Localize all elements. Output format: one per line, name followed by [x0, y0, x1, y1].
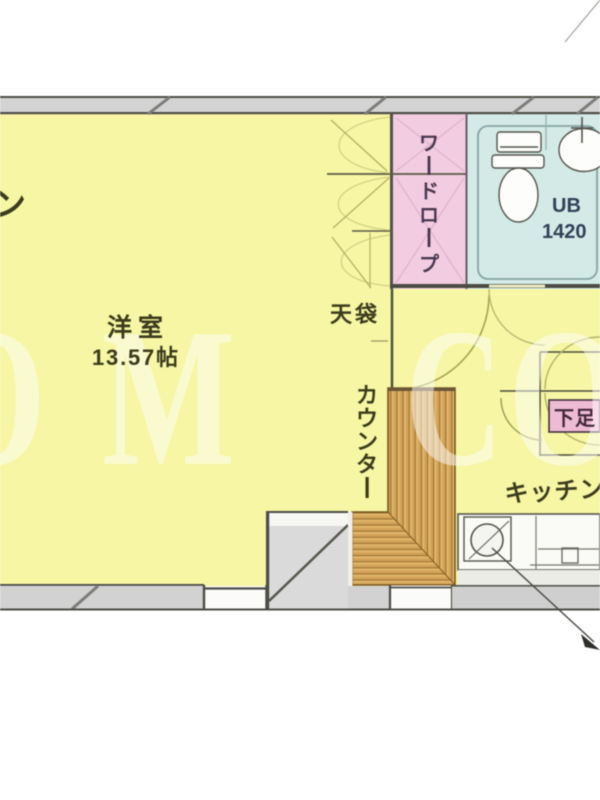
svg-text:O: O — [0, 288, 46, 507]
svg-text:ワ: ワ — [419, 133, 439, 155]
svg-text:カ: カ — [356, 383, 378, 408]
svg-text:13.57帖: 13.57帖 — [92, 345, 180, 370]
svg-text:タ: タ — [356, 452, 378, 477]
svg-text:ド: ド — [419, 181, 439, 203]
svg-text:洋室: 洋室 — [107, 313, 169, 342]
svg-text:ロ: ロ — [419, 205, 439, 227]
svg-text:キッチン: キッチン — [504, 476, 600, 508]
svg-text:下足: 下足 — [554, 408, 596, 430]
svg-text:C: C — [405, 288, 503, 507]
svg-text:ン: ン — [356, 429, 378, 454]
svg-text:ウ: ウ — [356, 406, 378, 431]
svg-text:1420: 1420 — [542, 221, 587, 243]
svg-text:O: O — [508, 288, 600, 507]
svg-text:UB: UB — [552, 195, 581, 217]
svg-text:天袋: 天袋 — [330, 302, 380, 327]
svg-text:ン: ン — [0, 186, 26, 224]
svg-text:プ: プ — [419, 253, 440, 276]
